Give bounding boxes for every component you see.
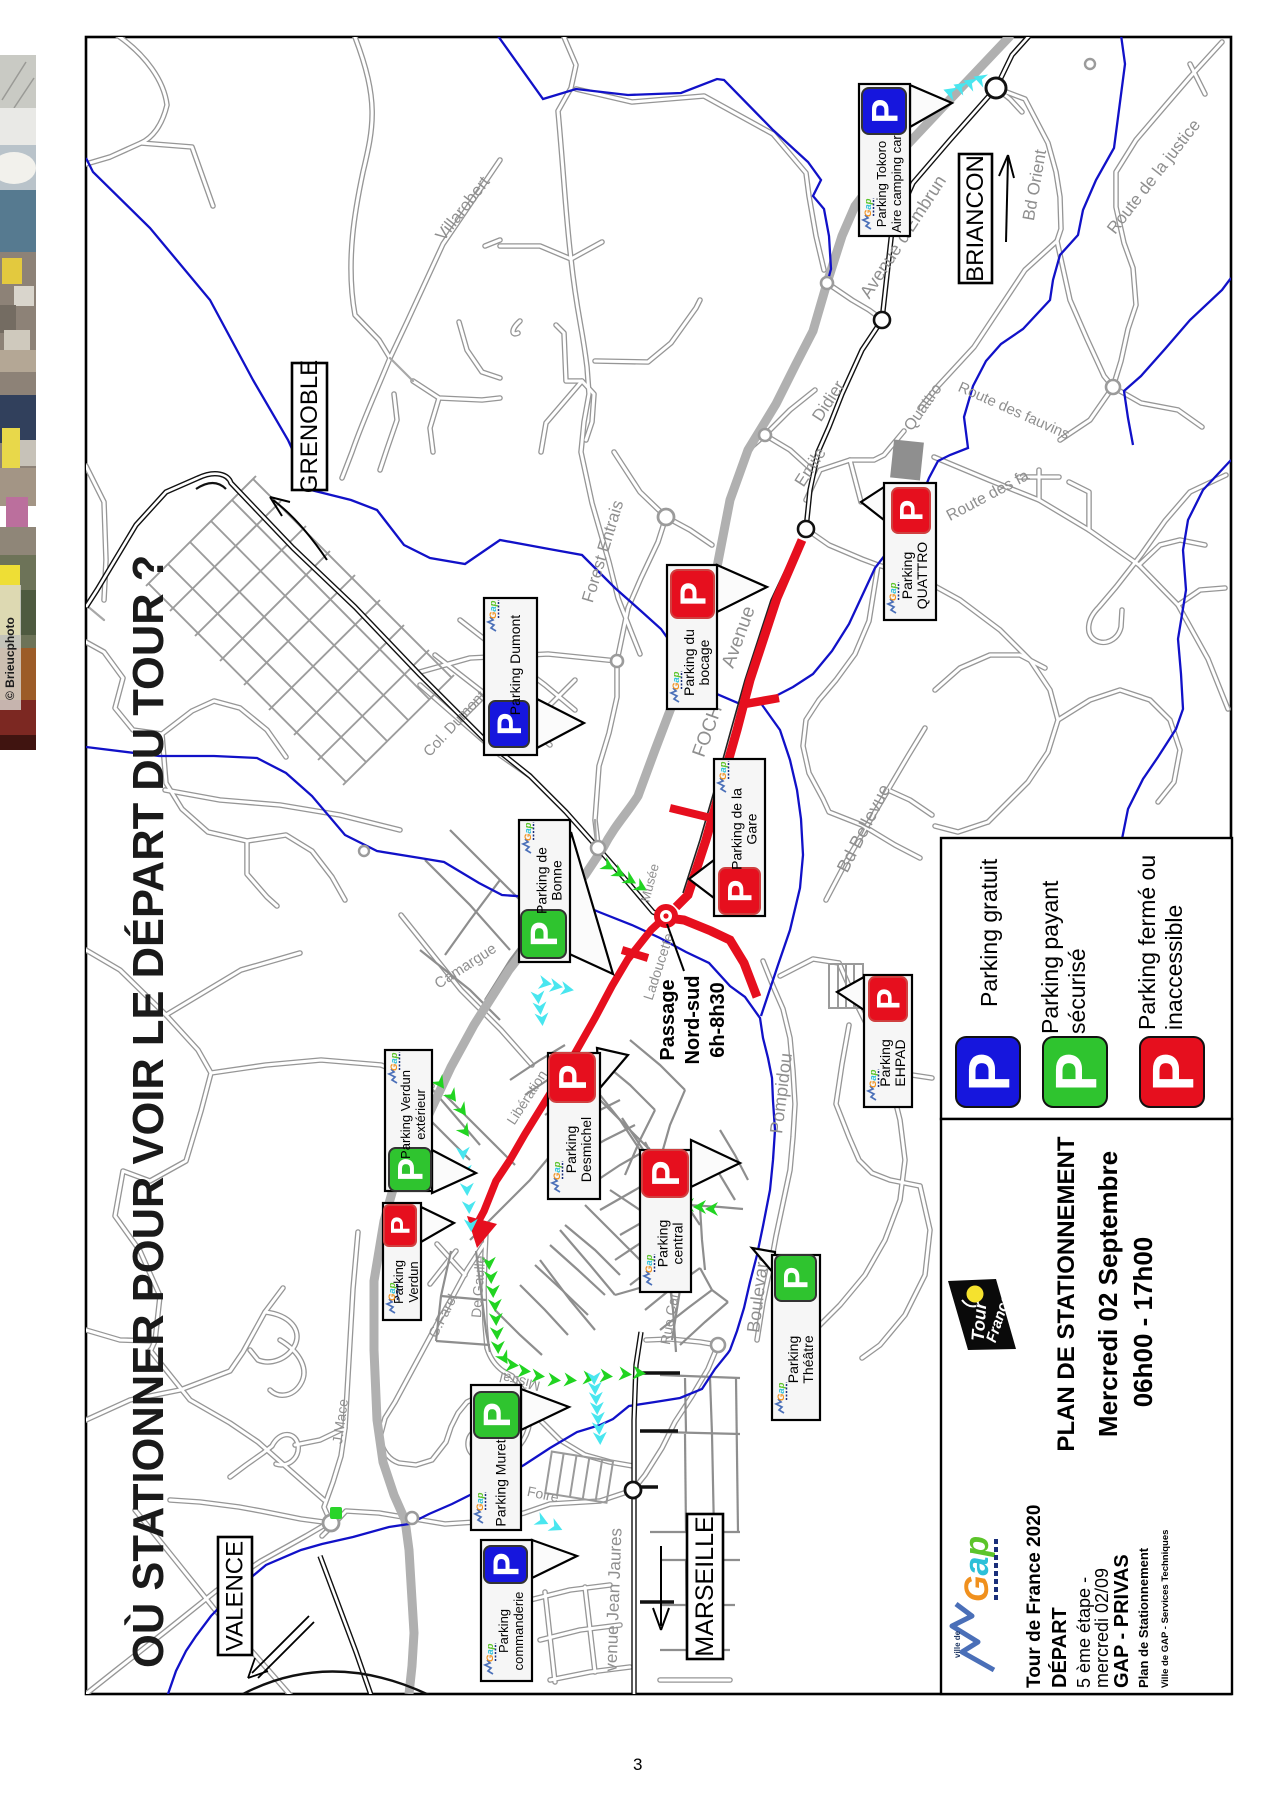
svg-text:06h00 - 17h00: 06h00 - 17h00 — [1128, 1237, 1158, 1408]
svg-text:P: P — [1141, 1053, 1206, 1092]
svg-text:Tour de France 2020: Tour de France 2020 — [1024, 1505, 1045, 1688]
svg-text:Gap: Gap — [718, 761, 729, 780]
svg-text:BRIANCON: BRIANCON — [962, 155, 989, 282]
svg-text:Parking: Parking — [563, 1126, 579, 1173]
svg-text:Parking de: Parking de — [534, 847, 550, 914]
svg-text:OÙ STATIONNER POUR VOIR LE DÉP: OÙ STATIONNER POUR VOIR LE DÉPART DU TOU… — [123, 555, 173, 1668]
svg-text:Gap: Gap — [644, 1254, 655, 1273]
svg-text:Gap: Gap — [671, 671, 682, 690]
svg-text:Gap: Gap — [868, 1069, 879, 1088]
svg-text:Parking: Parking — [899, 552, 915, 599]
svg-text:EHPAD: EHPAD — [892, 1039, 908, 1086]
svg-text:Bonne: Bonne — [549, 860, 565, 901]
svg-text:6h-8h30: 6h-8h30 — [707, 982, 729, 1058]
svg-text:Verdun: Verdun — [406, 1261, 421, 1302]
svg-text:Gap: Gap — [475, 1492, 486, 1511]
svg-text:P: P — [864, 99, 905, 124]
svg-text:P: P — [957, 1053, 1022, 1092]
svg-text:© Brieucphoto: © Brieucphoto — [3, 617, 17, 700]
svg-text:P: P — [386, 1216, 416, 1234]
svg-text:mercredi 02/09: mercredi 02/09 — [1092, 1568, 1112, 1688]
svg-text:sécurisé: sécurisé — [1064, 948, 1090, 1034]
svg-text:Parking Dumont: Parking Dumont — [507, 615, 523, 715]
svg-text:DÉPART: DÉPART — [1048, 1607, 1071, 1688]
svg-text:P: P — [1044, 1053, 1109, 1092]
svg-text:Gap: Gap — [863, 198, 874, 217]
svg-text:Mercredi 02 Septembre: Mercredi 02 Septembre — [1093, 1151, 1123, 1437]
svg-text:Gap: Gap — [776, 1382, 787, 1401]
svg-text:VALENCE: VALENCE — [222, 1541, 249, 1651]
svg-text:Gare: Gare — [744, 813, 760, 844]
svg-text:Parking Muret: Parking Muret — [493, 1439, 509, 1526]
svg-text:P: P — [673, 582, 714, 606]
svg-text:Parking: Parking — [496, 1609, 511, 1653]
svg-text:bocage: bocage — [696, 639, 712, 685]
svg-text:P: P — [524, 921, 566, 946]
svg-text:extérieur: extérieur — [413, 1089, 428, 1140]
svg-text:Gap: Gap — [488, 600, 499, 619]
svg-text:P: P — [392, 1158, 431, 1181]
svg-text:Parking gratuit: Parking gratuit — [976, 858, 1002, 1007]
svg-text:Parking payant: Parking payant — [1037, 880, 1063, 1034]
svg-text:Gap: Gap — [523, 822, 534, 841]
svg-text:Gap: Gap — [888, 582, 899, 601]
svg-text:Parking: Parking — [785, 1336, 801, 1383]
svg-text:Parking: Parking — [655, 1220, 671, 1267]
svg-text:3: 3 — [633, 1755, 642, 1774]
svg-text:P: P — [894, 500, 930, 521]
svg-text:P: P — [552, 1064, 595, 1090]
svg-text:ville de: ville de — [953, 1630, 962, 1658]
svg-text:Parking fermé ou: Parking fermé ou — [1134, 855, 1160, 1030]
svg-text:Plan de Stationnement: Plan de Stationnement — [1136, 1547, 1151, 1688]
svg-text:P: P — [477, 1402, 519, 1427]
svg-text:Gap: Gap — [958, 1536, 996, 1602]
svg-text:Parking de la: Parking de la — [729, 788, 745, 870]
svg-text:PLAN DE STATIONNEMENT: PLAN DE STATIONNEMENT — [1053, 1136, 1080, 1451]
svg-text:Gap: Gap — [485, 1643, 496, 1662]
svg-text:QUATTRO: QUATTRO — [914, 542, 930, 610]
svg-text:Nord-sud: Nord-sud — [682, 976, 704, 1065]
svg-text:commanderie: commanderie — [511, 1592, 526, 1671]
svg-text:Parking du: Parking du — [681, 629, 697, 696]
svg-text:P: P — [645, 1160, 688, 1186]
svg-text:Ville de GAP - Services Techni: Ville de GAP - Services Techniques — [1160, 1530, 1171, 1688]
svg-text:Aire camping car: Aire camping car — [889, 135, 904, 233]
svg-text:MARSEILLE: MARSEILLE — [691, 1516, 719, 1656]
svg-text:GRENOBLE: GRENOBLE — [296, 360, 323, 493]
svg-text:inaccessible: inaccessible — [1161, 905, 1187, 1030]
svg-text:P: P — [871, 988, 907, 1009]
svg-text:5 ème étape -: 5 ème étape - — [1074, 1577, 1094, 1688]
svg-text:Gap: Gap — [552, 1161, 563, 1180]
svg-text:Parking: Parking — [877, 1039, 893, 1086]
svg-text:P: P — [486, 1552, 527, 1576]
svg-text:Passage: Passage — [657, 979, 679, 1060]
svg-text:Gap: Gap — [387, 1282, 398, 1301]
svg-text:Desmichel: Desmichel — [578, 1117, 594, 1182]
svg-text:GAP - PRIVAS: GAP - PRIVAS — [1111, 1554, 1133, 1688]
svg-text:Gap: Gap — [389, 1052, 400, 1071]
svg-text:Parking Verdun: Parking Verdun — [398, 1070, 413, 1159]
svg-text:P: P — [778, 1267, 816, 1290]
svg-text:P: P — [722, 880, 760, 903]
svg-text:Parking Tokoro: Parking Tokoro — [874, 141, 889, 227]
svg-text:Théâtre: Théâtre — [800, 1335, 816, 1383]
svg-text:central: central — [670, 1222, 686, 1264]
